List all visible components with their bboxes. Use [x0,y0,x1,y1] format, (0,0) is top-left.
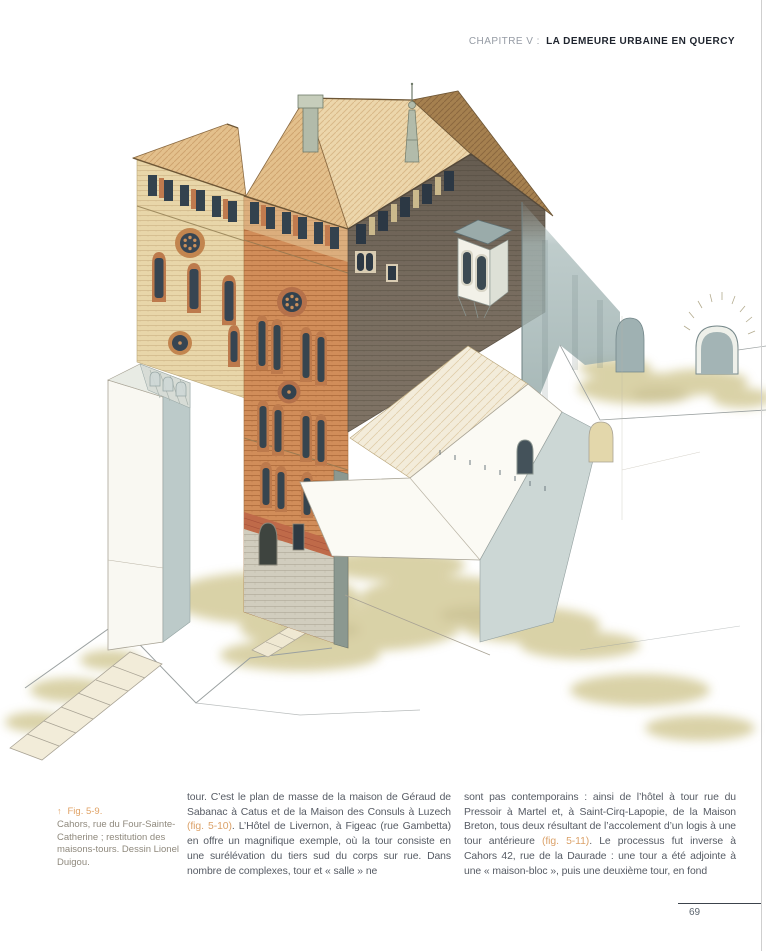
annex-arched-window [517,440,533,474]
small-window [386,264,398,282]
left-tower [137,160,245,398]
base-window [293,524,304,550]
chapter-label: CHAPITRE V : [469,36,540,47]
rose-window-upper [277,287,307,317]
chapter-title: LA DEMEURE URBAINE EN QUERCY [546,36,735,47]
figure-caption-text: Cahors, rue du Four-Sainte-Catherine ; r… [57,819,179,869]
body-text: tour. C’est le plan de masse de la maiso… [187,791,736,879]
page-number: 69 [689,907,700,918]
figure-caption: ↑Fig. 5-9. Cahors, rue du Four-Sainte-Ca… [57,805,179,869]
lower-arch [589,422,613,462]
footer-rule [678,903,762,904]
book-page: CHAPITRE V : LA DEMEURE URBAINE EN QUERC… [0,0,766,951]
garden-arch-right [684,292,755,374]
rose-window [175,228,205,258]
rose-window-mid [278,381,301,404]
body-column-1: tour. C’est le plan de masse de la maiso… [187,791,451,879]
tower-door [259,523,277,565]
up-arrow-icon: ↑ [57,806,62,816]
small-twin-window [355,251,376,273]
garden-arch-left [616,318,644,372]
figure-label: Fig. 5-9. [68,806,103,817]
rose-window-lower [168,331,192,355]
chapter-header: CHAPITRE V : LA DEMEURE URBAINE EN QUERC… [469,36,735,47]
left-annex [108,364,190,650]
body-column-2: sont pas contemporains : ainsi de l’hôte… [464,791,736,879]
main-tower [244,196,348,648]
figure-label-line: ↑Fig. 5-9. [57,805,179,818]
page-edge-line [761,0,762,951]
